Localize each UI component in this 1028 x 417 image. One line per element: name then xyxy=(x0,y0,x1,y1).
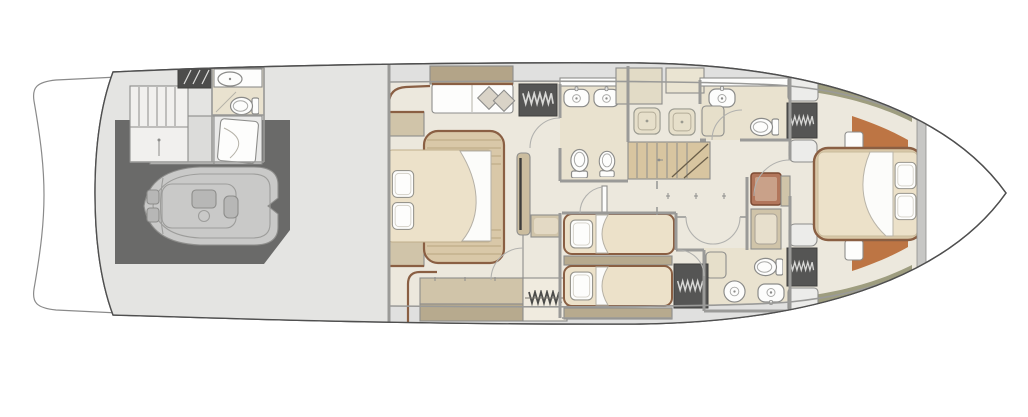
guest-top-sink xyxy=(709,87,735,108)
bow-bulkhead xyxy=(917,96,926,292)
guest-bottom-shower xyxy=(706,252,726,278)
twin-mid-shelf xyxy=(564,256,672,265)
interior xyxy=(90,60,926,326)
crew-berth xyxy=(217,118,259,163)
master-hanging-locker xyxy=(519,84,557,116)
midship-cabinet-1 xyxy=(616,68,662,104)
master-bidet-icon xyxy=(599,151,614,177)
vip-seat-top xyxy=(789,140,817,162)
crew-stairs xyxy=(130,86,188,162)
single-bed-lower xyxy=(564,266,672,306)
lobby-seat xyxy=(751,173,781,205)
master-toilet-icon xyxy=(571,150,588,179)
companionway-hatch xyxy=(178,67,212,88)
passage-door-leaf xyxy=(602,186,607,212)
master-sink-1 xyxy=(564,87,589,107)
master-nightstand-top xyxy=(389,112,424,136)
tender-rib xyxy=(144,167,278,245)
vip-double-bed xyxy=(814,148,922,240)
shower-2 xyxy=(669,109,695,135)
tender-seat xyxy=(224,196,238,218)
guest-bottom-sink xyxy=(758,284,784,305)
guest-top-toilet-icon xyxy=(751,118,780,135)
master-sink-2 xyxy=(594,87,619,107)
washer xyxy=(724,281,745,302)
master-sofa xyxy=(430,66,515,113)
crew-sink-icon xyxy=(218,72,242,86)
vip-seat-bottom xyxy=(789,224,817,246)
shower-1 xyxy=(634,108,660,134)
main-staircase xyxy=(628,142,710,179)
tender-console xyxy=(192,190,216,208)
master-sideboard xyxy=(408,272,523,322)
crew-toilet-icon xyxy=(231,97,260,114)
lobby-vanity xyxy=(751,209,781,249)
vip-nightstand-bottom xyxy=(845,240,863,260)
floorplan-canvas xyxy=(0,0,1028,417)
master-side-cabinet xyxy=(531,215,561,237)
master-nightstand-bottom xyxy=(389,240,424,266)
guest-bottom-toilet-icon xyxy=(755,258,784,275)
yacht-lower-deck-plan xyxy=(0,0,1028,417)
single-bed-upper xyxy=(564,214,674,254)
midship-cabinet-2 xyxy=(666,68,704,93)
